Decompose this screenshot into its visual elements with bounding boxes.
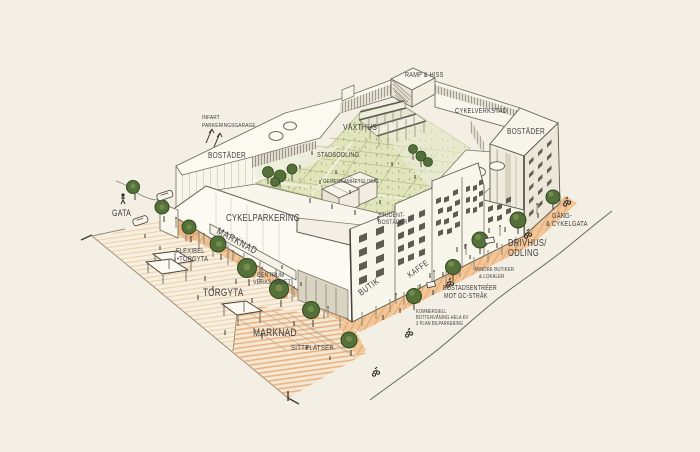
svg-text:BOSTÄDER: BOSTÄDER — [208, 150, 246, 160]
svg-text:RAMP & HISS: RAMP & HISS — [405, 71, 444, 79]
svg-text:PARKERINGSGARAGE: PARKERINGSGARAGE — [202, 123, 256, 130]
svg-text:BOSTÄDER: BOSTÄDER — [378, 218, 407, 226]
svg-text:GATA: GATA — [112, 208, 131, 218]
svg-text:INFART: INFART — [202, 115, 220, 122]
svg-text:FLEXIBEL: FLEXIBEL — [176, 247, 205, 255]
svg-text:TORGYTA: TORGYTA — [203, 287, 244, 300]
svg-text:BOSTADSENTRÉER: BOSTADSENTRÉER — [443, 282, 497, 292]
svg-text:ODLING: ODLING — [508, 247, 539, 258]
svg-text:& LOKALER: & LOKALER — [479, 274, 505, 281]
svg-text:& CYKELGATA: & CYKELGATA — [546, 220, 588, 228]
svg-text:•TORGYTA: •TORGYTA — [177, 255, 209, 263]
svg-text:VERKSAMHET: VERKSAMHET — [253, 280, 291, 287]
svg-text:SITTPLATSER: SITTPLATSER — [291, 344, 334, 352]
svg-text:MOT GC-STRÅK: MOT GC-STRÅK — [444, 290, 488, 300]
svg-text:VÄXTHUS: VÄXTHUS — [343, 122, 377, 132]
svg-text:CENTRUM: CENTRUM — [257, 273, 284, 280]
svg-text:GÅNG-: GÅNG- — [552, 210, 572, 220]
svg-text:BOTTENVÅNING HELA KV: BOTTENVÅNING HELA KV — [416, 313, 468, 320]
svg-text:CYKELPARKERING: CYKELPARKERING — [226, 212, 300, 223]
svg-text:BOSTÄDER: BOSTÄDER — [507, 126, 545, 136]
svg-text:GEMENSAMHETSLOKAL: GEMENSAMHETSLOKAL — [323, 179, 380, 186]
svg-text:MARKNAD: MARKNAD — [253, 327, 297, 339]
svg-text:CYKELVERKSTAD: CYKELVERKSTAD — [455, 107, 507, 115]
svg-text:STUDENT-: STUDENT- — [378, 213, 405, 220]
svg-text:KOMMERSIELL: KOMMERSIELL — [416, 309, 447, 315]
svg-text:STADSODLING: STADSODLING — [317, 151, 359, 159]
svg-text:3 PLAN BILPARKERING: 3 PLAN BILPARKERING — [416, 321, 463, 327]
svg-text:MINDRE BUTIKER: MINDRE BUTIKER — [475, 267, 514, 274]
